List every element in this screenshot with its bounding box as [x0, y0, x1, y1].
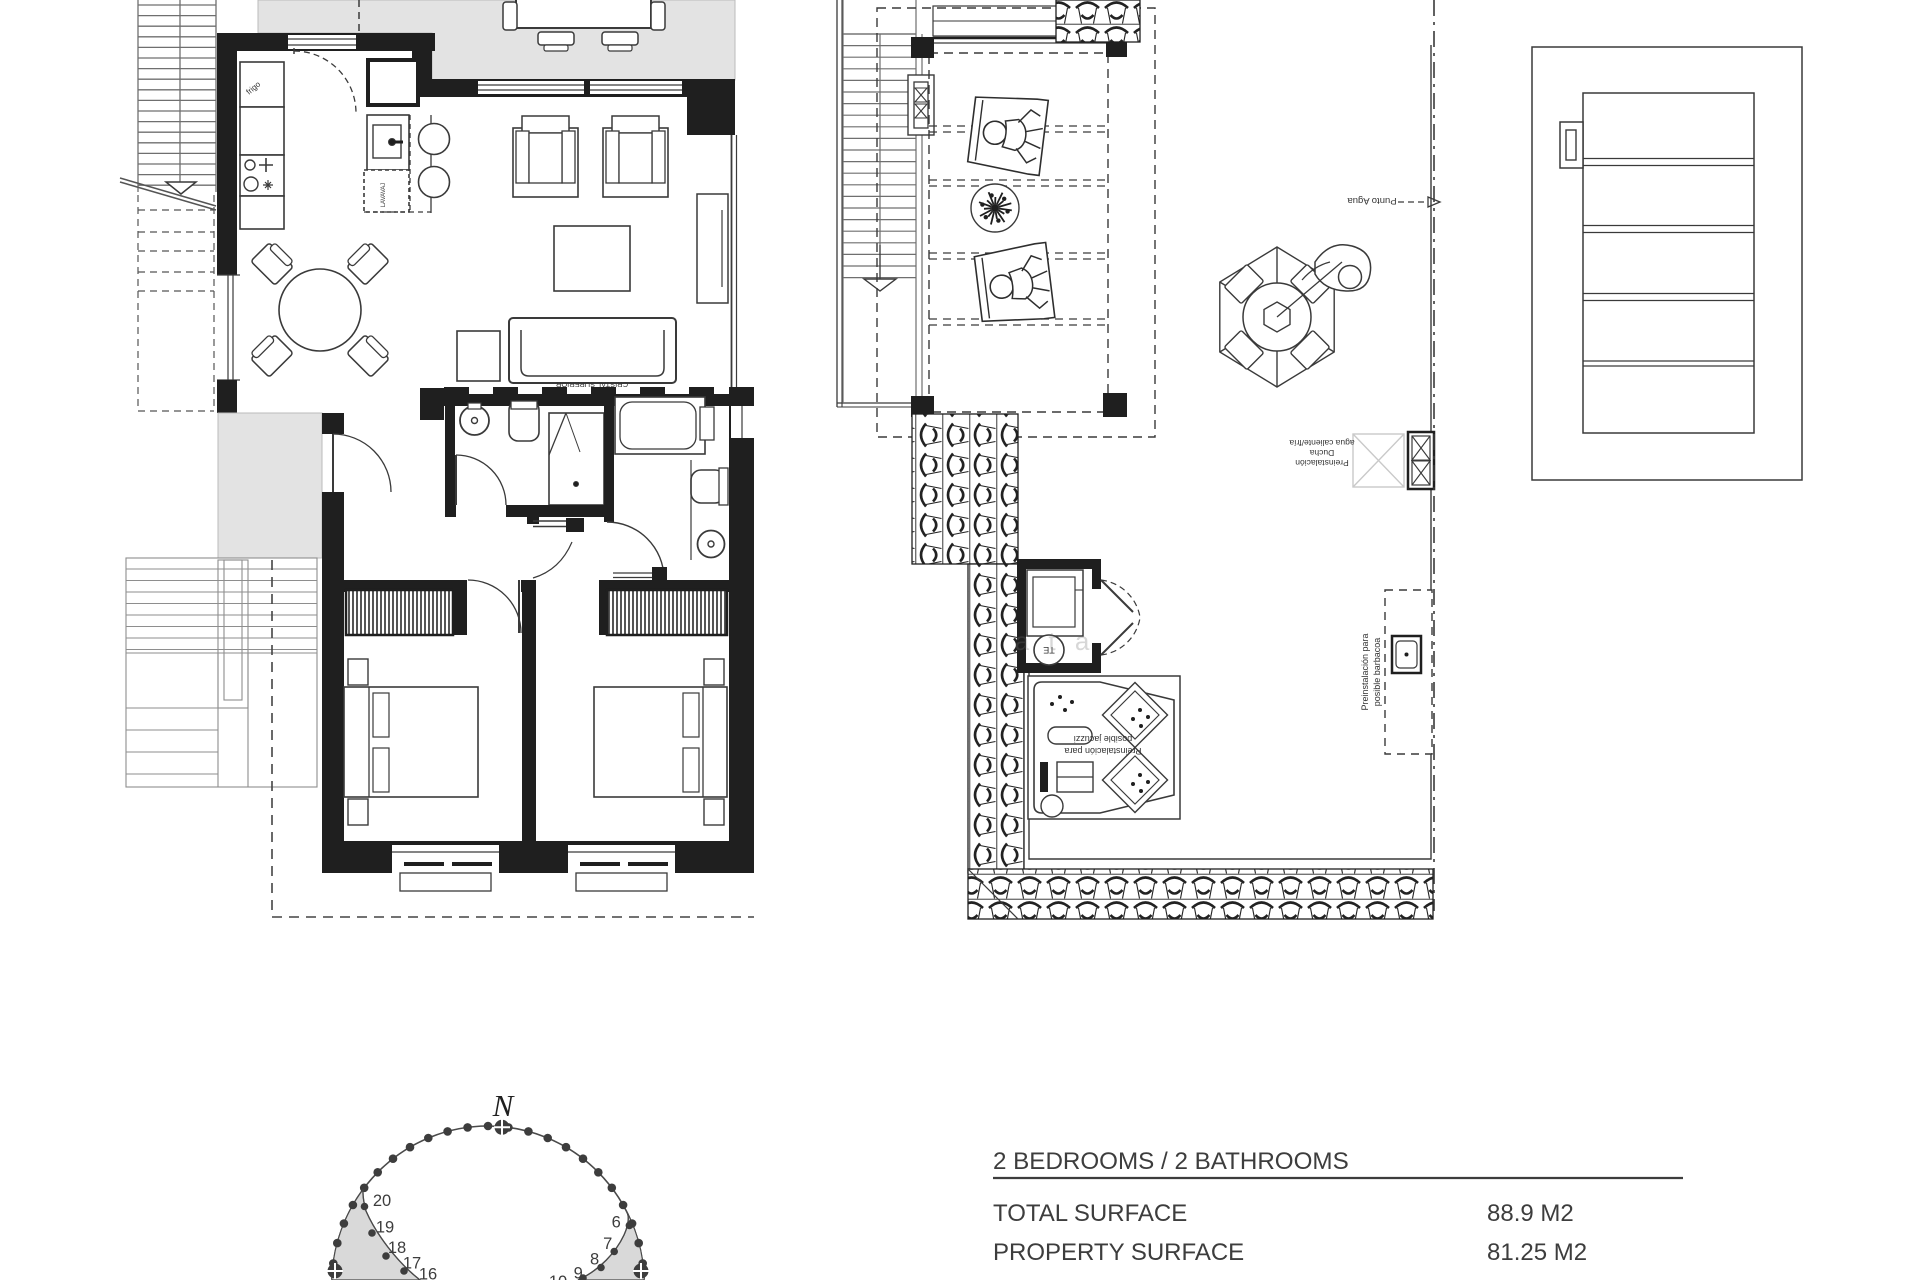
svg-text:TOTAL SURFACE: TOTAL SURFACE	[993, 1200, 1187, 1227]
svg-text:8: 8	[590, 1251, 599, 1269]
svg-text:81.25 M2: 81.25 M2	[1487, 1239, 1587, 1266]
svg-text:Punto Agua: Punto Agua	[1347, 195, 1397, 206]
svg-text:19: 19	[376, 1219, 394, 1237]
svg-text:Preinstalación: Preinstalación	[1295, 458, 1349, 468]
svg-text:CRISTAL SUPERIOR: CRISTAL SUPERIOR	[555, 380, 628, 389]
svg-text:LAVAVAJ: LAVAVAJ	[381, 183, 387, 208]
svg-text:2 BEDROOMS / 2 BATHROOMS: 2 BEDROOMS / 2 BATHROOMS	[993, 1148, 1349, 1175]
svg-text:posible barbacoa: posible barbacoa	[1372, 638, 1382, 707]
svg-text:PROPERTY SURFACE: PROPERTY SURFACE	[993, 1239, 1244, 1266]
svg-text:10: 10	[549, 1273, 567, 1280]
svg-text:a t a: a t a	[1015, 626, 1096, 656]
svg-text:88.9 M2: 88.9 M2	[1487, 1200, 1574, 1227]
svg-text:16: 16	[419, 1266, 437, 1280]
svg-text:Preinstalación para: Preinstalación para	[1064, 746, 1141, 756]
svg-text:Ducha: Ducha	[1309, 448, 1334, 458]
svg-text:7: 7	[603, 1235, 612, 1253]
svg-text:9: 9	[574, 1265, 583, 1280]
svg-text:Preinstalación para: Preinstalación para	[1360, 633, 1370, 710]
svg-text:6: 6	[612, 1214, 621, 1232]
svg-text:agua caliente/fría: agua caliente/fría	[1289, 438, 1354, 448]
svg-text:posible jacuzzi: posible jacuzzi	[1074, 734, 1133, 744]
svg-text:N: N	[492, 1088, 516, 1123]
svg-text:20: 20	[373, 1192, 391, 1210]
